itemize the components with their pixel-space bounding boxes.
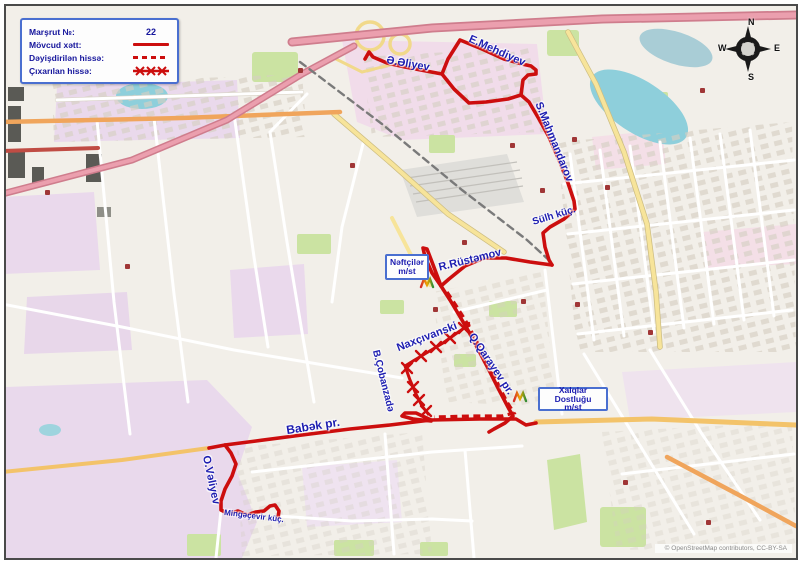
legend-removed-line-sample [131, 65, 171, 77]
legend-existing-label: Mövcud xətt: [29, 40, 81, 50]
map-canvas: Ə.Əliyev E.Mehdiyev S.Mahmandarov Sülh k… [4, 4, 798, 560]
legend-row-removed: Çıxarılan hissə: [29, 64, 171, 77]
legend-removed-label: Çıxarılan hissə: [29, 66, 92, 76]
compass-n: N [748, 17, 755, 27]
station-box-neftciler: Nəftçilər m/st [385, 254, 429, 280]
legend-box: Marşrut №: 22 Mövcud xətt: Dəyişdirilən … [20, 18, 179, 84]
legend-changed-line-sample [131, 56, 171, 59]
legend-route-label: Marşrut №: [29, 27, 75, 37]
osm-attribution: © OpenStreetMap contributors, CC-BY-SA [655, 544, 792, 553]
legend-row-existing: Mövcud xətt: [29, 38, 171, 51]
legend-existing-line-sample [131, 43, 171, 46]
compass-s: S [748, 72, 754, 82]
map-flyer: Ə.Əliyev E.Mehdiyev S.Mahmandarov Sülh k… [0, 0, 800, 562]
station-neftciler-suffix: m/st [387, 267, 427, 276]
legend-changed-label: Dəyişdirilən hissə: [29, 53, 104, 63]
station-xalqlar-suffix: m/st [540, 403, 606, 412]
legend-row-changed: Dəyişdirilən hissə: [29, 51, 171, 64]
compass-e: E [774, 43, 780, 53]
compass-w: W [718, 43, 727, 53]
legend-row-route-number: Marşrut №: 22 [29, 25, 171, 38]
basemap-svg [6, 6, 796, 558]
station-box-xalqlar: Xalqlar Dostluğu m/st [538, 387, 608, 411]
legend-route-number: 22 [131, 27, 171, 37]
station-xalqlar-name: Xalqlar Dostluğu [540, 386, 606, 404]
